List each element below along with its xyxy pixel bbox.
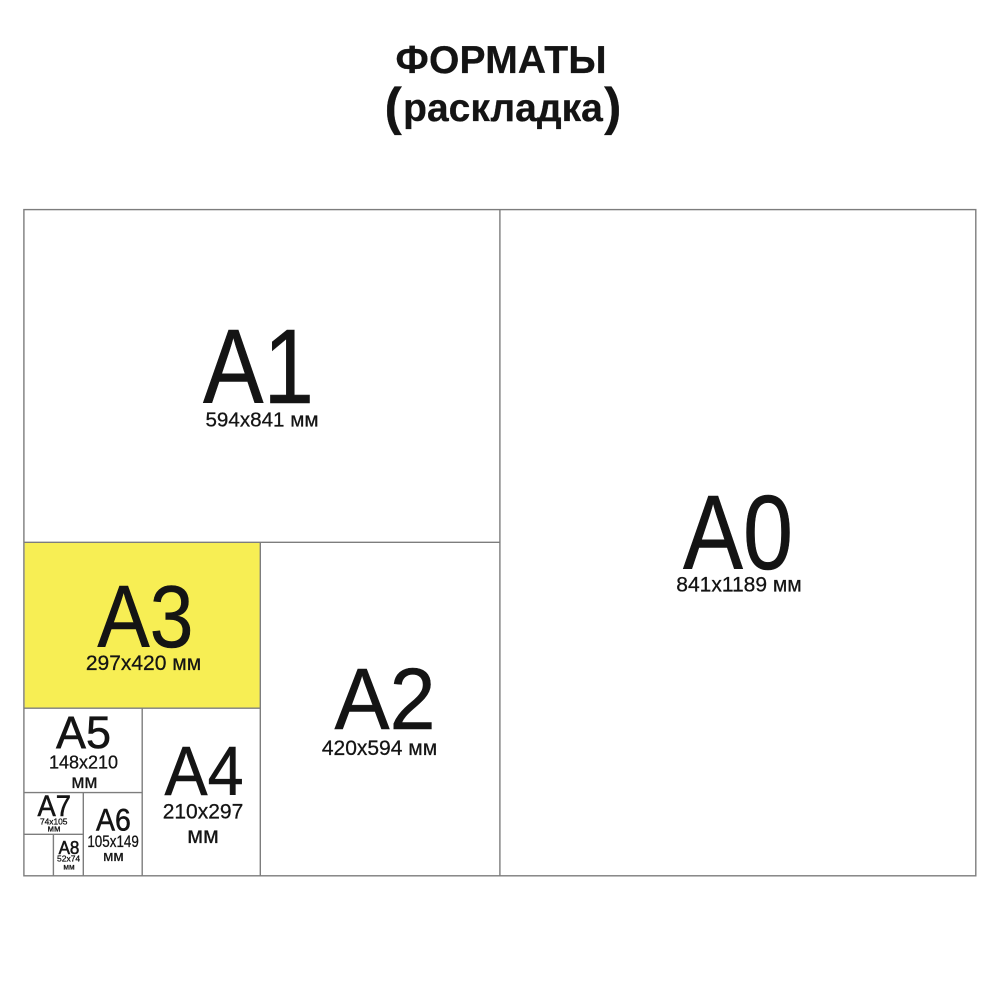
svg-text:210х297: 210х297 (163, 801, 244, 824)
svg-text:): ) (604, 78, 621, 136)
svg-text:мм: мм (71, 772, 97, 793)
svg-text:594х841 мм: 594х841 мм (205, 409, 318, 432)
svg-text:297х420 мм: 297х420 мм (86, 652, 201, 675)
svg-text:мм: мм (47, 824, 60, 835)
svg-text:А5: А5 (56, 707, 111, 758)
svg-text:А2: А2 (335, 651, 436, 748)
svg-text:(: ( (385, 78, 403, 136)
svg-text:мм: мм (103, 848, 124, 865)
svg-text:ФОРМАТЫ: ФОРМАТЫ (396, 39, 607, 82)
svg-text:А4: А4 (165, 732, 244, 810)
svg-text:мм: мм (187, 822, 219, 848)
svg-text:148х210: 148х210 (49, 753, 118, 773)
svg-text:841х1189 мм: 841х1189 мм (676, 574, 801, 597)
svg-text:мм: мм (63, 863, 75, 872)
svg-text:раскладка: раскладка (403, 87, 603, 130)
svg-text:420х594 мм: 420х594 мм (322, 737, 437, 760)
